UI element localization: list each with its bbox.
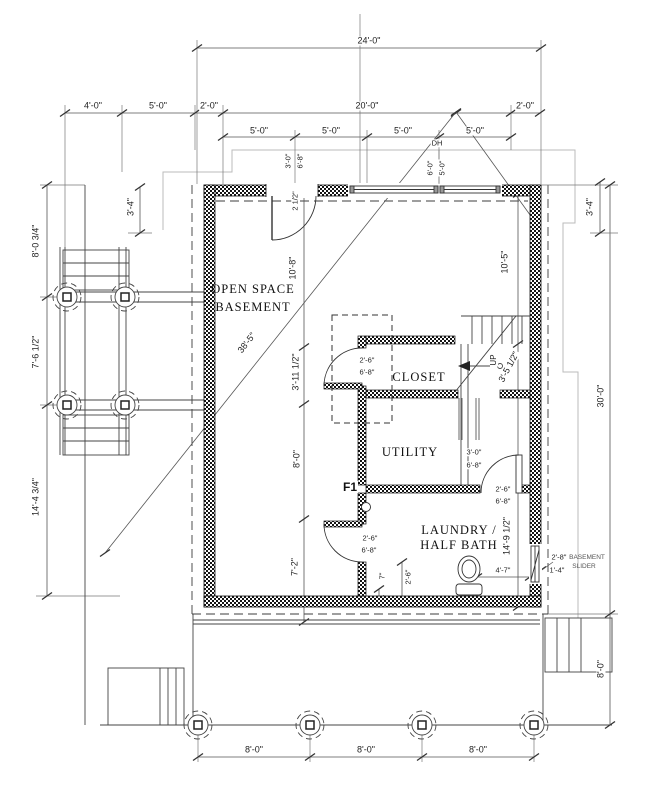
dim-toilet-offset: 4'-7" <box>495 566 512 574</box>
dim-interior-left: 3'-11 1/2" <box>292 352 301 391</box>
room-label-open-space: OPEN SPACE <box>210 283 296 296</box>
piers <box>53 283 548 739</box>
dim-window-size: 6'-0" <box>426 160 434 177</box>
dim-interior-left: 10'-8" <box>289 256 298 281</box>
dim-offset: 5'-0" <box>148 102 168 111</box>
double-hung-window <box>350 186 438 193</box>
open-space-door <box>324 521 362 562</box>
dim-right-stair: 8'-0" <box>597 659 606 679</box>
dim-offset: 2'-0" <box>515 102 535 111</box>
dim-window-bay: 5'-0" <box>393 127 413 136</box>
floor-plan-sheet: 24'-0" 4'-0" 5'-0" 2'-0" 20'-0" 2'-0" 5'… <box>0 0 665 800</box>
room-label-half-bath: HALF BATH <box>419 539 498 552</box>
window-type-label: DH <box>431 139 444 147</box>
room-label-utility: UTILITY <box>381 446 439 459</box>
dim-entry-door: 6'-8" <box>296 153 304 170</box>
dim-left-string: 14'-4 3/4" <box>32 477 41 517</box>
dim-understair-door: 6'-8" <box>466 461 483 469</box>
dim-laundry-door: 2'-6" <box>495 485 512 493</box>
room-label-basement: BASEMENT <box>214 301 291 314</box>
dim-window-bay: 5'-0" <box>249 127 269 136</box>
room-label-laundry: LAUNDRY / <box>420 524 498 537</box>
dim-pier-bay: 8'-0" <box>356 746 376 755</box>
dim-interior-right: 10'-5" <box>501 250 510 275</box>
dim-entry-door: 3'-0" <box>284 153 292 170</box>
dim-interior-left: 8'-0" <box>293 449 302 469</box>
dim-corner-left: 3'-4" <box>127 197 136 217</box>
room-label-closet: CLOSET <box>391 371 446 384</box>
dim-pier-bay: 8'-0" <box>244 746 264 755</box>
dim-offset: 2'-0" <box>199 102 219 111</box>
footing-mark-label: F1 <box>342 481 358 493</box>
dim-closet-door: 2'-6" <box>359 356 376 364</box>
dim-interior-right: 14'-9 1/2" <box>503 516 512 556</box>
left-deck <box>60 185 204 725</box>
stair-up-label: UP <box>490 353 498 366</box>
dim-jamb-offset: 2 1/2" <box>291 190 299 211</box>
dim-slider-half: 1'-4" <box>549 566 566 574</box>
dim-pier-bay: 8'-0" <box>468 746 488 755</box>
dim-left-string: 8'-0 3/4" <box>32 224 41 259</box>
footing-marker <box>362 150 554 570</box>
dim-interior-left: 7'-2" <box>291 557 300 577</box>
dim-open-space-door: 6'-8" <box>361 546 378 554</box>
dim-laundry-door: 6'-8" <box>495 497 512 505</box>
dim-corner-right: 3'-4" <box>586 197 595 217</box>
basement-slider-window <box>531 546 539 582</box>
double-hung-window <box>440 186 500 193</box>
dim-span: 20'-0" <box>355 102 380 111</box>
dim-window-bay: 5'-0" <box>465 127 485 136</box>
slider-note: SLIDER <box>571 564 596 571</box>
dim-open-space-door: 2'-6" <box>362 534 379 542</box>
toilet <box>456 556 482 595</box>
slider-note: BASEMENT <box>568 555 606 562</box>
dim-overall-width: 24'-0" <box>357 37 382 46</box>
dim-wall-stub: 7" <box>378 572 386 581</box>
dim-window-size: 5'-0" <box>438 160 446 177</box>
floor-plan-drawing <box>0 0 665 800</box>
dim-overall-height: 30'-0" <box>597 384 606 409</box>
dim-door-clear: 2'-6" <box>404 569 412 586</box>
closet-door <box>324 348 362 389</box>
dim-closet-door: 6'-8" <box>359 368 376 376</box>
bottom-deck <box>100 614 612 725</box>
dim-understair-door: 3'-0" <box>466 448 483 456</box>
dim-left-string: 7'-6 1/2" <box>32 335 41 370</box>
dim-slider-width: 2'-8" <box>551 553 568 561</box>
dim-window-bay: 5'-0" <box>321 127 341 136</box>
dim-offset: 4'-0" <box>83 102 103 111</box>
